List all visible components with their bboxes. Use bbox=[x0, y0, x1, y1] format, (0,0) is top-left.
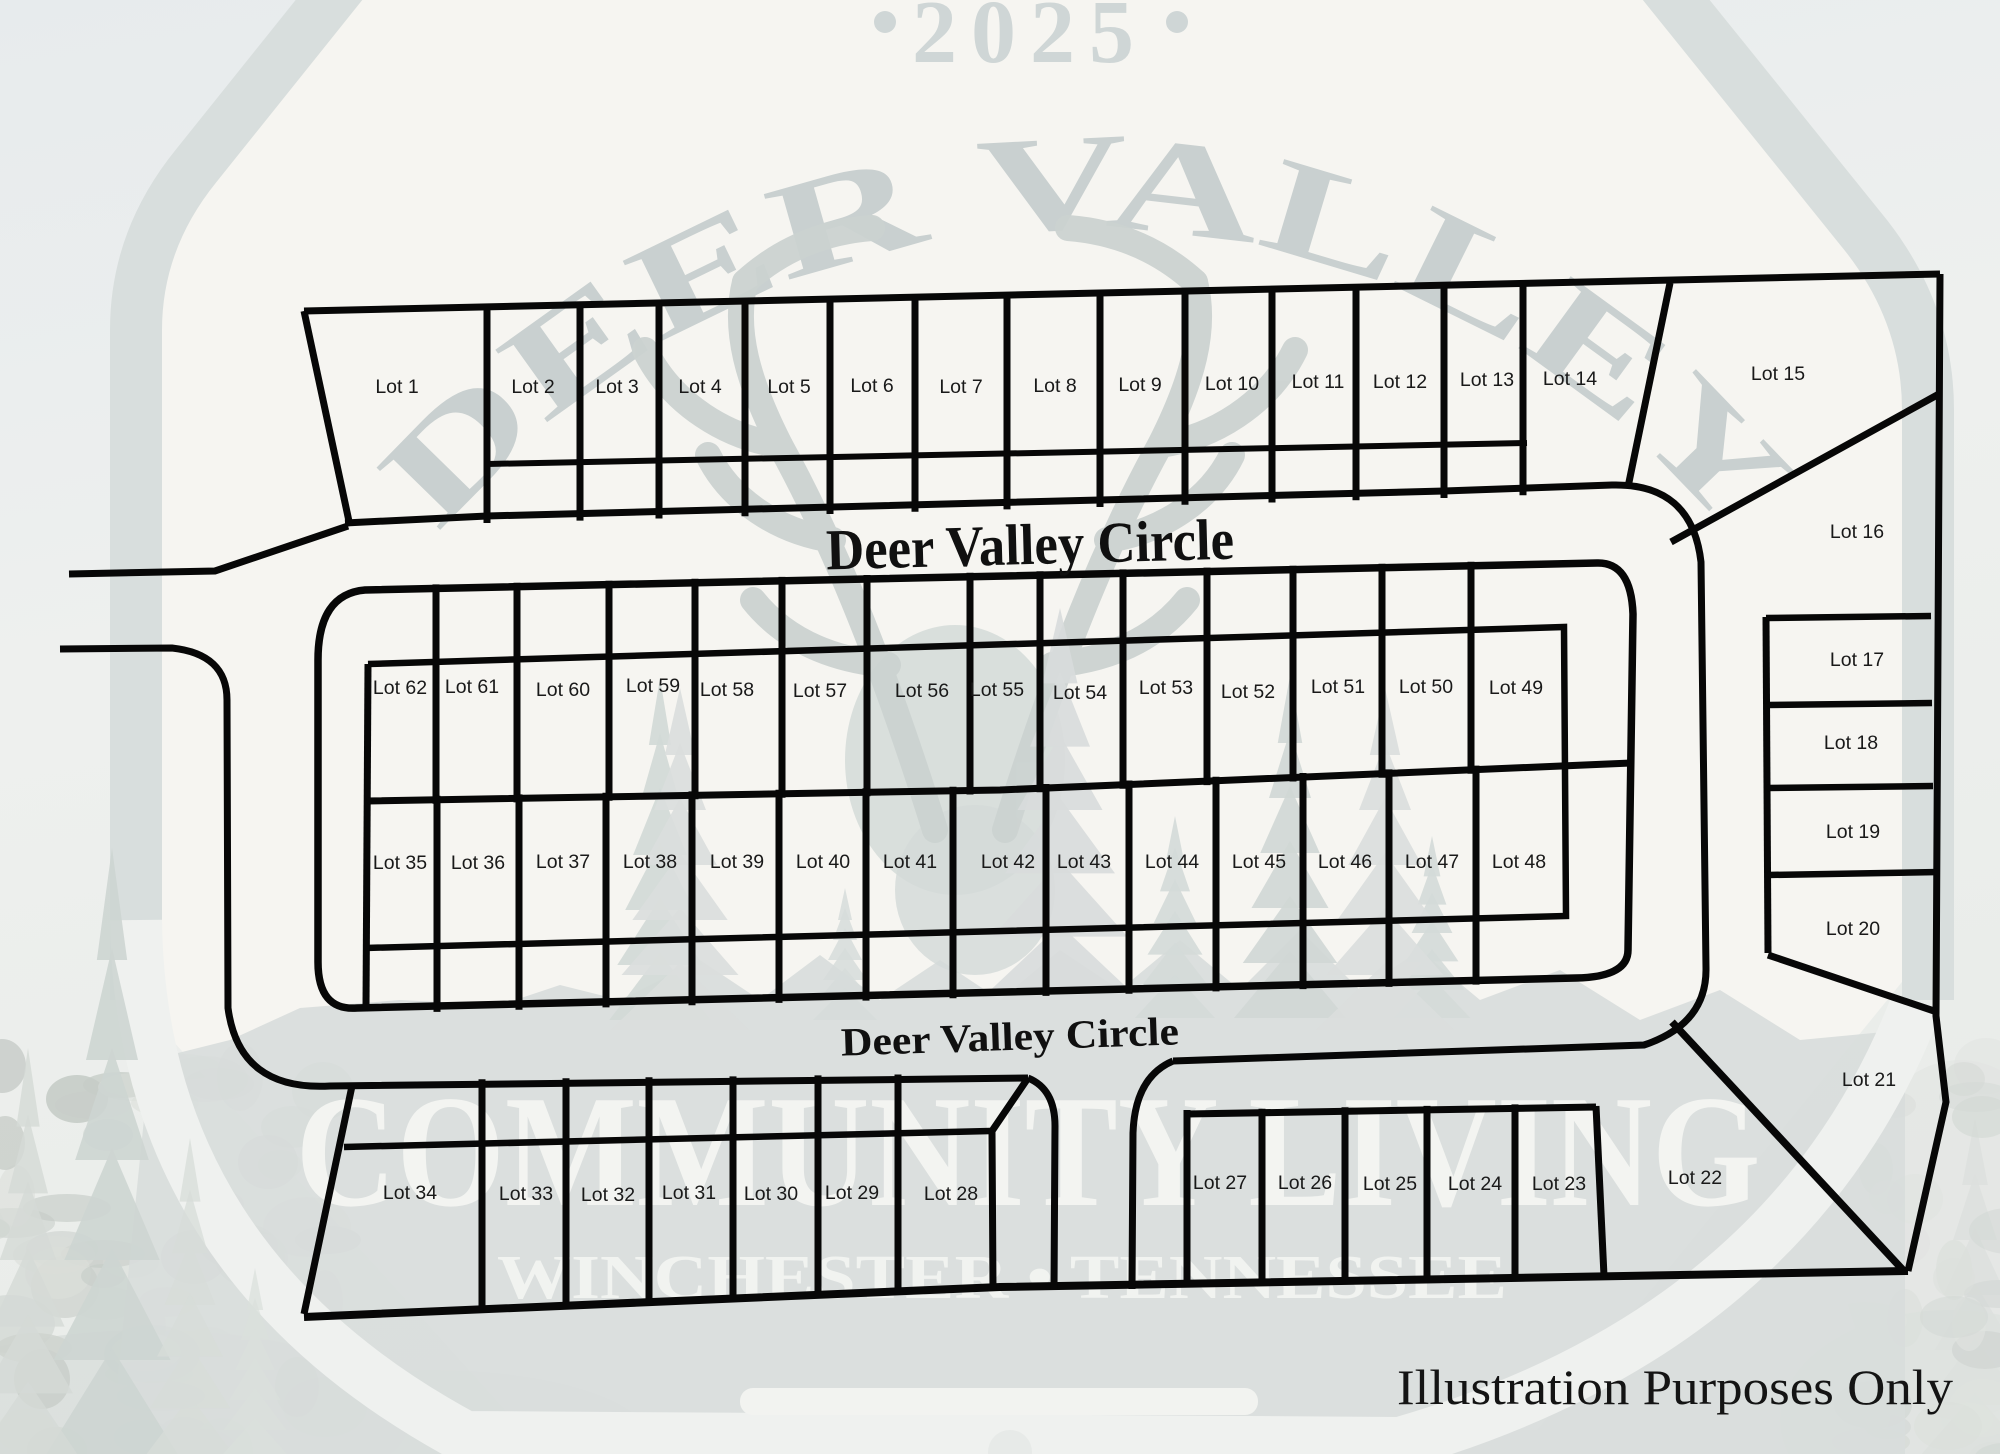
svg-text:Lot 46: Lot 46 bbox=[1318, 851, 1372, 873]
svg-text:Lot 4: Lot 4 bbox=[678, 376, 722, 398]
svg-text:Lot 10: Lot 10 bbox=[1205, 373, 1259, 395]
svg-text:Lot 26: Lot 26 bbox=[1278, 1172, 1332, 1194]
svg-text:Lot 44: Lot 44 bbox=[1145, 851, 1199, 873]
svg-text:Lot 19: Lot 19 bbox=[1826, 821, 1880, 843]
svg-text:Lot 3: Lot 3 bbox=[595, 376, 638, 398]
svg-text:Lot 34: Lot 34 bbox=[383, 1182, 437, 1204]
svg-text:Illustration Purposes Only: Illustration Purposes Only bbox=[1397, 1359, 1953, 1415]
svg-text:Lot 39: Lot 39 bbox=[710, 851, 764, 873]
svg-text:Lot 20: Lot 20 bbox=[1826, 918, 1880, 940]
svg-text:Lot 52: Lot 52 bbox=[1221, 681, 1275, 703]
svg-text:Lot 1: Lot 1 bbox=[375, 376, 418, 398]
svg-text:Lot 38: Lot 38 bbox=[623, 851, 677, 873]
svg-text:Lot 49: Lot 49 bbox=[1489, 677, 1543, 699]
svg-text:Lot 47: Lot 47 bbox=[1405, 851, 1459, 873]
svg-text:Lot 43: Lot 43 bbox=[1057, 851, 1111, 873]
svg-text:Lot 13: Lot 13 bbox=[1460, 369, 1514, 391]
svg-text:Lot 36: Lot 36 bbox=[451, 852, 505, 874]
svg-text:Lot 33: Lot 33 bbox=[499, 1183, 553, 1205]
svg-text:Lot 53: Lot 53 bbox=[1139, 677, 1193, 699]
svg-text:Lot 14: Lot 14 bbox=[1543, 368, 1597, 390]
svg-text:Lot 12: Lot 12 bbox=[1373, 371, 1427, 393]
svg-text:Lot 31: Lot 31 bbox=[662, 1182, 716, 1204]
svg-text:Lot 22: Lot 22 bbox=[1668, 1167, 1722, 1189]
svg-text:Lot 2: Lot 2 bbox=[511, 376, 554, 398]
svg-text:Lot 16: Lot 16 bbox=[1830, 521, 1884, 543]
svg-text:Lot 18: Lot 18 bbox=[1824, 732, 1878, 754]
svg-text:Lot 40: Lot 40 bbox=[796, 851, 850, 873]
svg-text:Deer Valley Circle: Deer Valley Circle bbox=[825, 507, 1235, 583]
svg-text:Lot 23: Lot 23 bbox=[1532, 1173, 1586, 1195]
svg-text:Lot 54: Lot 54 bbox=[1053, 682, 1107, 704]
svg-text:Lot 5: Lot 5 bbox=[767, 376, 811, 398]
svg-text:Lot 61: Lot 61 bbox=[445, 676, 499, 698]
svg-text:Lot 24: Lot 24 bbox=[1448, 1173, 1502, 1195]
svg-text:Lot 55: Lot 55 bbox=[970, 679, 1024, 701]
svg-text:Lot 28: Lot 28 bbox=[924, 1183, 978, 1205]
svg-text:Lot 57: Lot 57 bbox=[793, 680, 847, 702]
svg-text:Lot 37: Lot 37 bbox=[536, 851, 590, 873]
svg-text:Lot 29: Lot 29 bbox=[825, 1182, 879, 1204]
svg-text:Lot 7: Lot 7 bbox=[939, 376, 982, 398]
svg-text:Lot 59: Lot 59 bbox=[626, 675, 680, 697]
svg-text:Lot 6: Lot 6 bbox=[850, 375, 893, 397]
svg-text:COMMUNITY LIVING: COMMUNITY LIVING bbox=[296, 1062, 1761, 1240]
svg-text:Lot 17: Lot 17 bbox=[1830, 649, 1884, 671]
svg-text:Lot 25: Lot 25 bbox=[1363, 1173, 1417, 1195]
svg-text:Lot 27: Lot 27 bbox=[1193, 1172, 1247, 1194]
svg-text:Lot 21: Lot 21 bbox=[1842, 1069, 1896, 1091]
svg-text:Lot 30: Lot 30 bbox=[744, 1183, 798, 1205]
svg-text:Lot 32: Lot 32 bbox=[581, 1184, 635, 1206]
svg-text:Lot 50: Lot 50 bbox=[1399, 676, 1453, 698]
svg-text:Lot 51: Lot 51 bbox=[1311, 676, 1365, 698]
svg-text:Lot 58: Lot 58 bbox=[700, 679, 754, 701]
svg-text:Lot 35: Lot 35 bbox=[373, 852, 427, 874]
svg-text:Lot 48: Lot 48 bbox=[1492, 851, 1546, 873]
svg-text:Lot 45: Lot 45 bbox=[1232, 851, 1286, 873]
svg-text:Lot 41: Lot 41 bbox=[883, 851, 937, 873]
svg-text:Lot 62: Lot 62 bbox=[373, 677, 427, 699]
svg-text:Lot 42: Lot 42 bbox=[981, 851, 1035, 873]
svg-text:Lot 60: Lot 60 bbox=[536, 679, 590, 701]
svg-text:Lot 15: Lot 15 bbox=[1751, 363, 1805, 385]
svg-text:Lot 11: Lot 11 bbox=[1292, 371, 1345, 393]
svg-text:Lot 8: Lot 8 bbox=[1033, 375, 1076, 397]
svg-text:Lot 9: Lot 9 bbox=[1118, 374, 1161, 396]
svg-text:Lot 56: Lot 56 bbox=[895, 680, 949, 702]
svg-text:2025: 2025 bbox=[912, 0, 1148, 82]
